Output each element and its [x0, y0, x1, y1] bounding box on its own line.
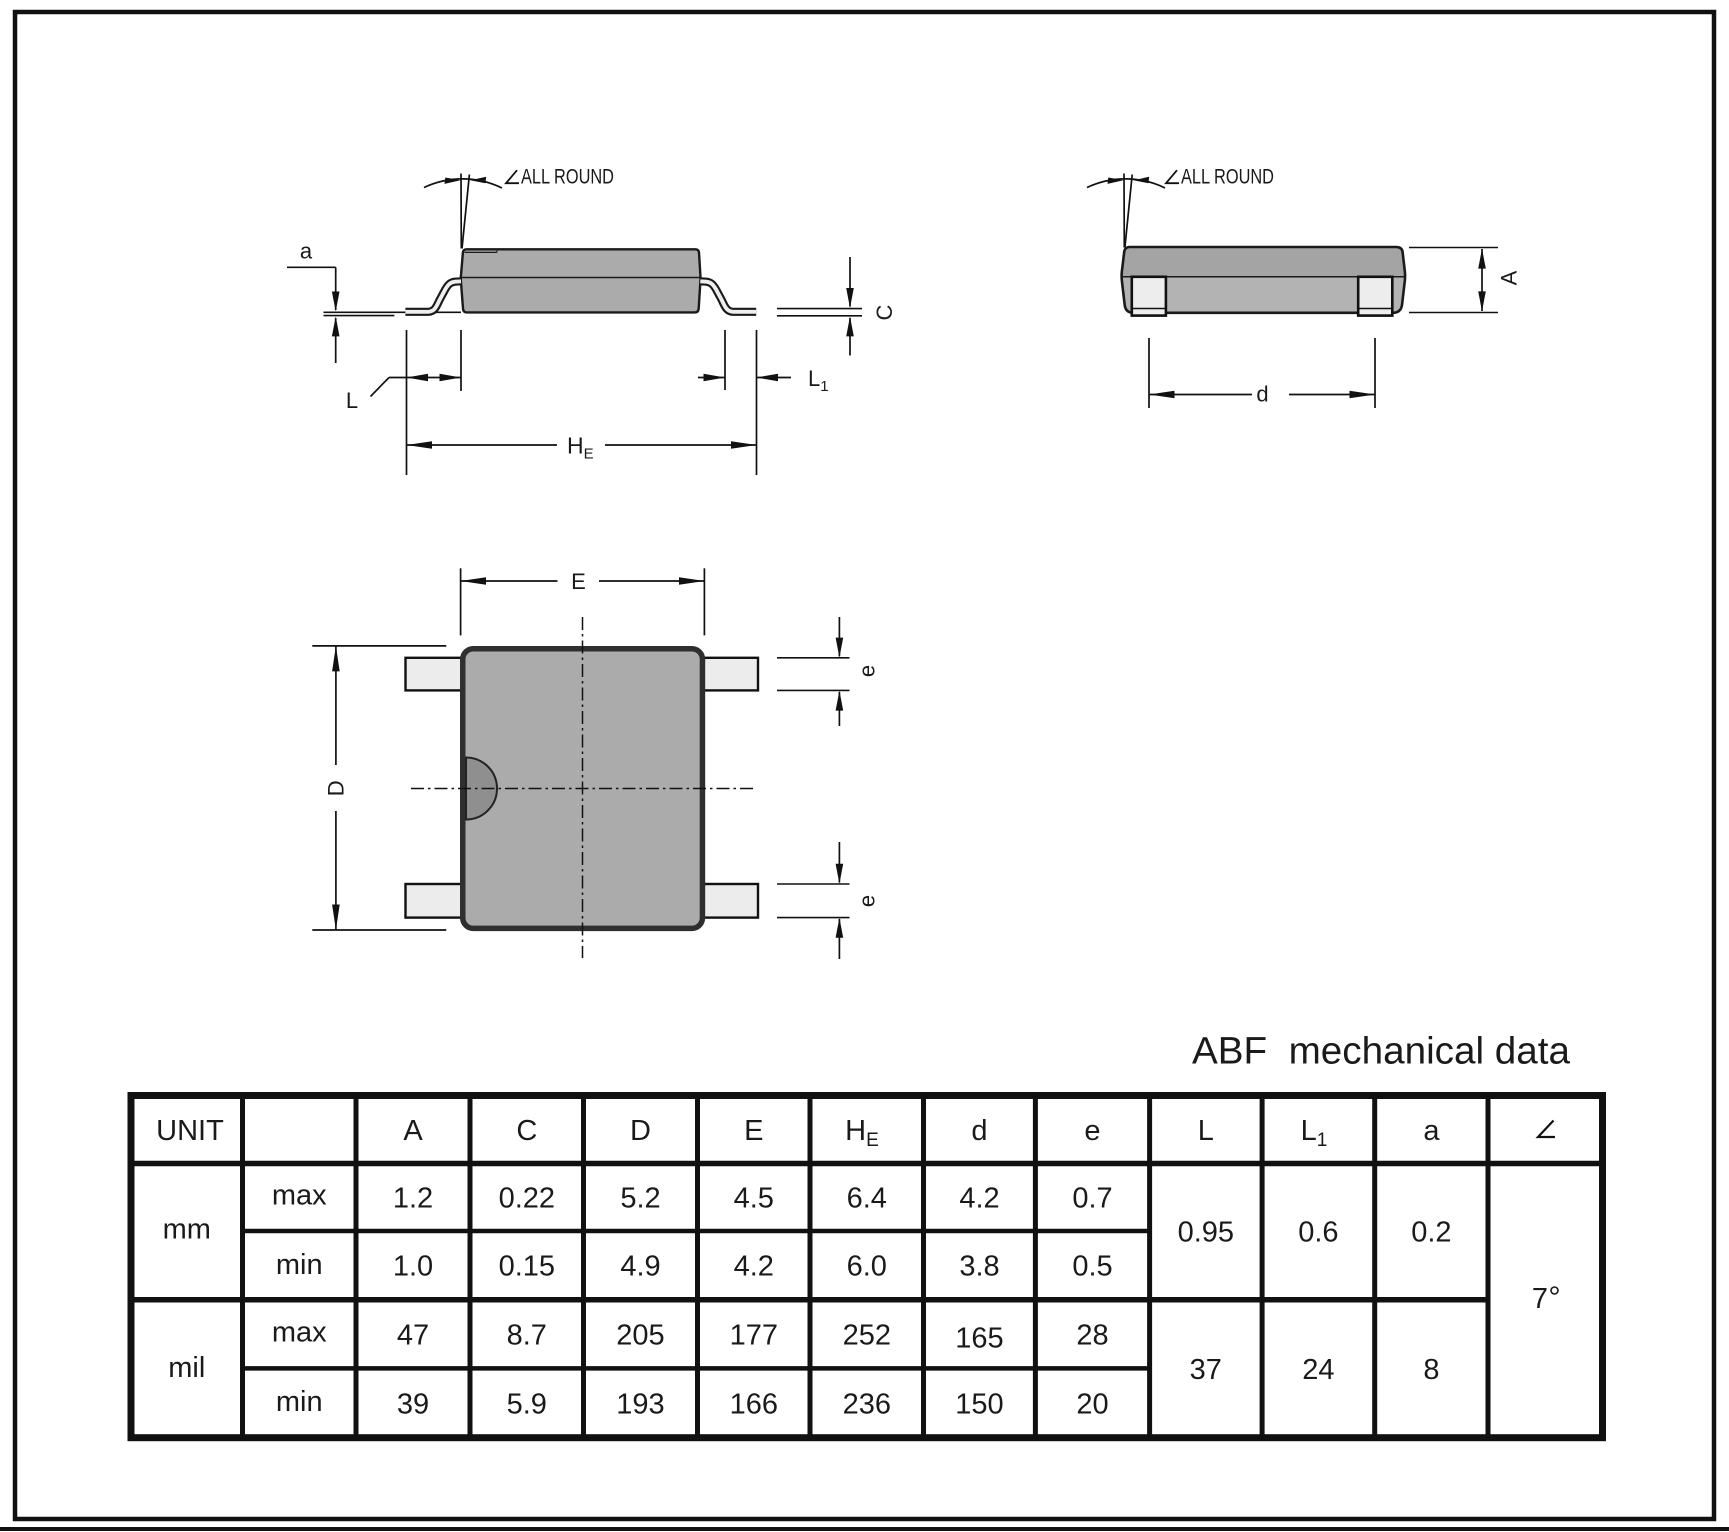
- svg-text:5.9: 5.9: [507, 1388, 547, 1420]
- svg-text:150: 150: [955, 1388, 1003, 1420]
- svg-text:A: A: [1497, 270, 1522, 285]
- svg-text:6.4: 6.4: [847, 1183, 887, 1215]
- svg-text:D: D: [323, 780, 348, 796]
- svg-text:0.95: 0.95: [1178, 1216, 1234, 1248]
- svg-text:mm: mm: [163, 1214, 211, 1246]
- svg-text:39: 39: [397, 1388, 429, 1420]
- svg-text:0.5: 0.5: [1072, 1251, 1112, 1283]
- svg-text:E: E: [744, 1115, 763, 1147]
- svg-text:20: 20: [1076, 1388, 1108, 1420]
- svg-text:193: 193: [616, 1388, 664, 1420]
- svg-text:a: a: [300, 239, 313, 264]
- svg-text:0.2: 0.2: [1411, 1216, 1451, 1248]
- svg-text:max: max: [272, 1180, 327, 1212]
- svg-text:ABF mechanical data: ABF mechanical data: [1192, 1031, 1571, 1073]
- svg-text:252: 252: [843, 1319, 891, 1351]
- svg-text:6.0: 6.0: [847, 1251, 887, 1283]
- svg-text:165: 165: [955, 1323, 1003, 1355]
- svg-text:177: 177: [730, 1319, 778, 1351]
- svg-text:8.7: 8.7: [507, 1319, 547, 1351]
- svg-text:A: A: [403, 1115, 423, 1147]
- svg-text:28: 28: [1076, 1319, 1108, 1351]
- svg-text:e: e: [854, 665, 879, 677]
- svg-text:a: a: [1423, 1115, 1440, 1147]
- svg-text:max: max: [272, 1317, 327, 1349]
- svg-text:0.7: 0.7: [1072, 1183, 1112, 1215]
- svg-text:205: 205: [616, 1319, 664, 1351]
- svg-text:4.9: 4.9: [620, 1251, 660, 1283]
- svg-text:L: L: [1198, 1115, 1214, 1147]
- svg-text:e: e: [854, 895, 879, 907]
- svg-text:C: C: [872, 304, 897, 320]
- svg-text:E: E: [571, 569, 586, 594]
- svg-text:ALL ROUND: ALL ROUND: [521, 166, 614, 189]
- svg-text:3.8: 3.8: [959, 1251, 999, 1283]
- svg-text:ALL ROUND: ALL ROUND: [1181, 166, 1274, 189]
- svg-text:37: 37: [1190, 1354, 1222, 1386]
- svg-text:d: d: [971, 1115, 987, 1147]
- svg-text:1.0: 1.0: [393, 1251, 433, 1283]
- svg-text:8: 8: [1423, 1354, 1439, 1386]
- svg-text:UNIT: UNIT: [156, 1115, 224, 1147]
- svg-text:L: L: [346, 388, 358, 413]
- svg-text:166: 166: [730, 1388, 778, 1420]
- svg-text:C: C: [516, 1115, 537, 1147]
- svg-text:4.5: 4.5: [734, 1183, 774, 1215]
- svg-text:min: min: [276, 1249, 323, 1281]
- svg-text:5.2: 5.2: [620, 1183, 660, 1215]
- svg-text:mil: mil: [168, 1352, 205, 1384]
- svg-text:7: 7: [1532, 1283, 1548, 1315]
- svg-text:0.15: 0.15: [499, 1251, 555, 1283]
- svg-text:D: D: [630, 1115, 651, 1147]
- svg-text:24: 24: [1302, 1354, 1334, 1386]
- svg-text:min: min: [276, 1386, 323, 1418]
- svg-text:0.22: 0.22: [499, 1183, 555, 1215]
- svg-text:d: d: [1256, 382, 1268, 407]
- svg-text:236: 236: [843, 1388, 891, 1420]
- svg-text:1.2: 1.2: [393, 1183, 433, 1215]
- svg-text:4.2: 4.2: [959, 1183, 999, 1215]
- svg-text:47: 47: [397, 1319, 429, 1351]
- svg-text:4.2: 4.2: [734, 1251, 774, 1283]
- svg-text:e: e: [1084, 1115, 1100, 1147]
- svg-text:0.6: 0.6: [1298, 1216, 1338, 1248]
